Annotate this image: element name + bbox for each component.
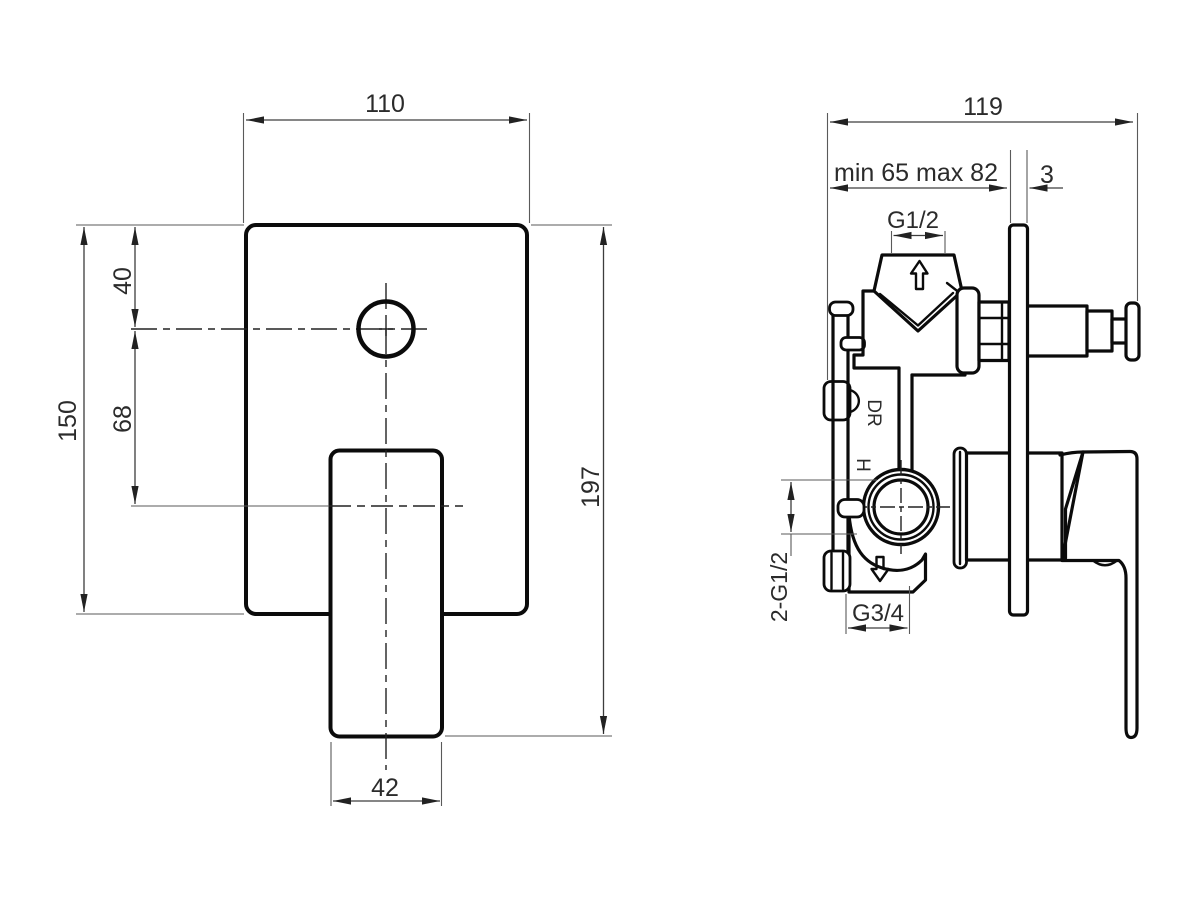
side-plate: [1010, 225, 1028, 615]
dim-150-extension-lines: [76, 225, 244, 614]
dim-119-label: 119: [963, 93, 1003, 121]
dim-inlet-thread: G1/2: [887, 207, 945, 253]
dim-2g12-label: 2-G1/2: [766, 552, 792, 622]
dim-3-label: 3: [1040, 161, 1054, 189]
dim-g12-label: G1/2: [887, 207, 939, 234]
dim-rough-in: min 65 max 82: [830, 159, 1007, 188]
stem-mid: [1087, 311, 1112, 351]
spout-lip: [838, 500, 864, 518]
inlet-port-outline: [874, 255, 962, 331]
handle-assembly: [954, 448, 1137, 738]
dim-plate-height: 150: [54, 225, 244, 614]
stem-base: [1027, 306, 1087, 356]
dim-197-label: 197: [577, 466, 605, 508]
bottom-port-fitting: [824, 551, 850, 591]
dim-rough-in-label: min 65 max 82: [834, 159, 998, 187]
drain-fitting-outline: [824, 382, 850, 421]
dim-plate-width: 110: [244, 90, 530, 223]
dim-plate-thickness: 3: [1011, 150, 1064, 223]
body-flange: [957, 288, 979, 373]
technical-drawing-page: 110 150 40 68 197 42: [0, 0, 1200, 900]
outlet-boss: [852, 460, 950, 554]
valve-body-neck: [899, 368, 912, 471]
pipe-bracket-lip: [841, 338, 865, 351]
dim-110-label: 110: [365, 90, 405, 118]
dim-110-extension-lines: [244, 113, 530, 223]
drain-fitting: [824, 382, 859, 421]
dim-40-label: 40: [109, 267, 137, 295]
dim-g12-extension-lines: [892, 231, 946, 253]
dim-68-label: 68: [109, 405, 137, 433]
dim-hole-offset: 40: [109, 227, 137, 327]
hex-nut-outline: [979, 302, 1009, 361]
front-view: [131, 225, 527, 770]
cartridge-stem: [1027, 303, 1139, 360]
dim-g34-label: G3/4: [852, 600, 904, 627]
stem-end-cap: [1126, 303, 1139, 360]
side-view: DR H: [824, 225, 1139, 738]
hot-label: H: [852, 458, 873, 472]
dim-3-extension-lines: [1011, 150, 1028, 223]
bottom-fitting-outline: [824, 551, 850, 591]
dim-42-label: 42: [371, 774, 399, 802]
inlet-port: [874, 255, 962, 331]
dim-150-label: 150: [54, 400, 82, 442]
pipe-elbow-cap: [830, 302, 854, 316]
mixer-installation-diagram: 110 150 40 68 197 42: [0, 0, 1200, 900]
dim-hole-to-lever: 68: [109, 331, 137, 504]
handle-lever: [1062, 452, 1137, 738]
drain-label: DR: [863, 399, 884, 426]
mounting-hex-nut: [979, 302, 1009, 361]
